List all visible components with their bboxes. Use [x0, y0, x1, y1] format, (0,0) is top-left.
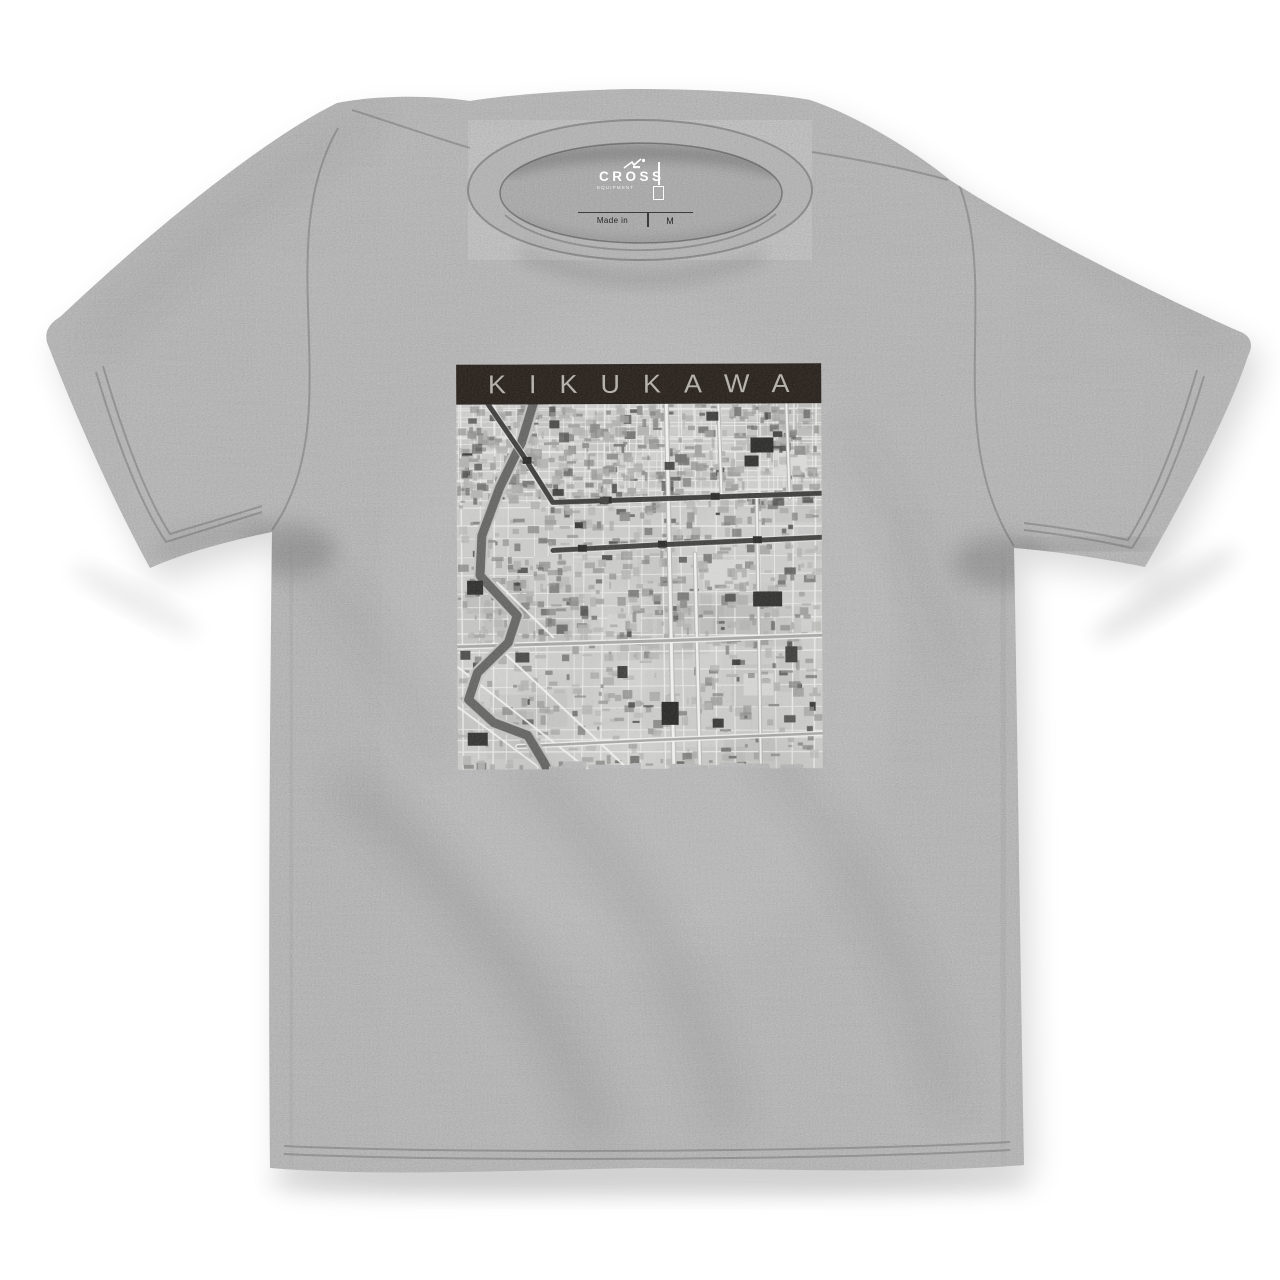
print-title-bar: KIKUKAWA	[456, 363, 821, 405]
made-in-text: Made in	[578, 216, 647, 225]
neck-size-label: Made in M	[578, 212, 693, 230]
map-print: KIKUKAWA	[456, 363, 823, 769]
print-title: KIKUKAWA	[465, 368, 813, 399]
product-photo-scene: CROSS EQUIPMENT Made in M KIKUKAWA	[0, 0, 1280, 1280]
map-print-canvas	[456, 403, 823, 770]
size-text: M	[647, 216, 693, 226]
brand-logo-stem	[658, 162, 660, 185]
neck-brand-label: CROSS EQUIPMENT	[588, 158, 684, 216]
brand-logo-box	[653, 186, 664, 200]
brand-subtitle: EQUIPMENT	[597, 185, 634, 190]
